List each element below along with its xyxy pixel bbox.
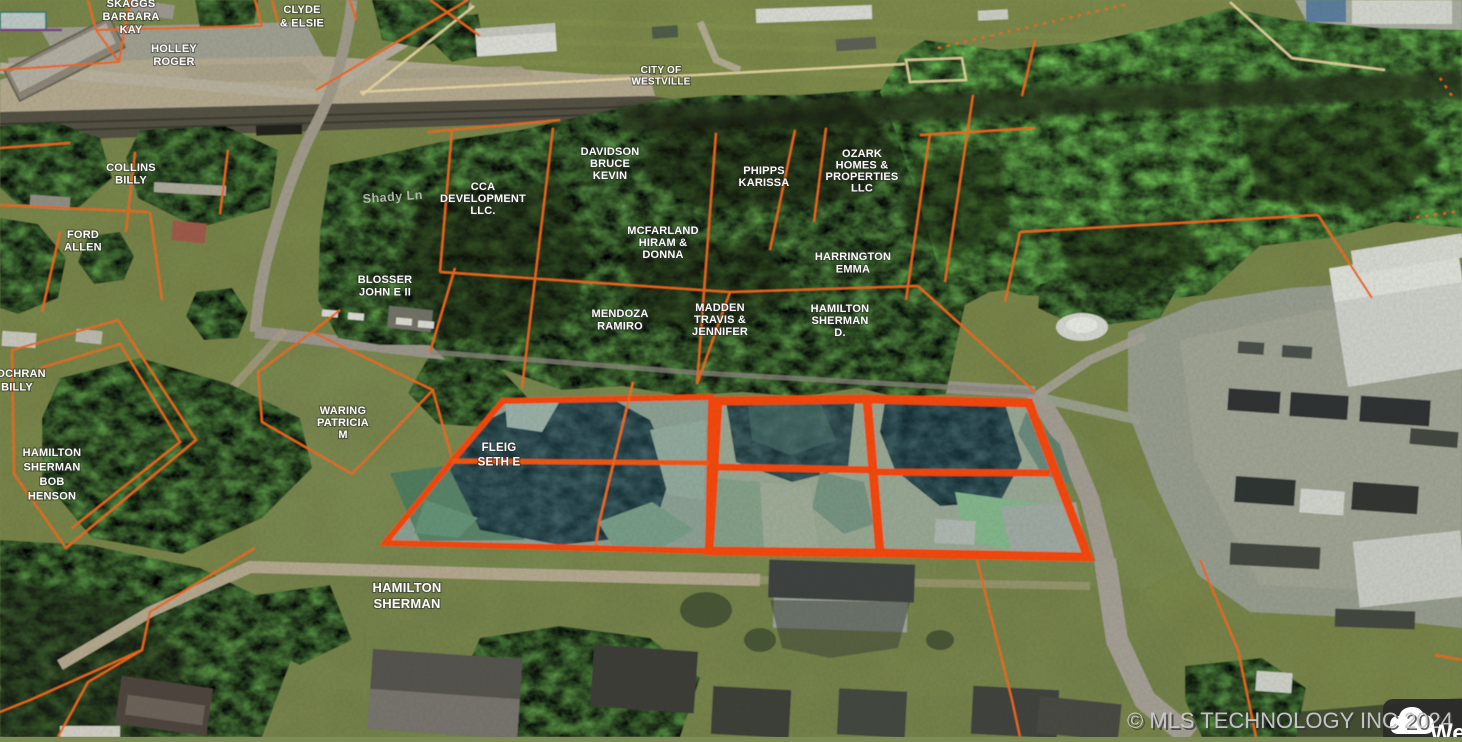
svg-text:We: We xyxy=(1430,720,1462,737)
svg-text:© MLS TECHNOLOGY INC 2024: © MLS TECHNOLOGY INC 2024 xyxy=(1127,708,1453,733)
